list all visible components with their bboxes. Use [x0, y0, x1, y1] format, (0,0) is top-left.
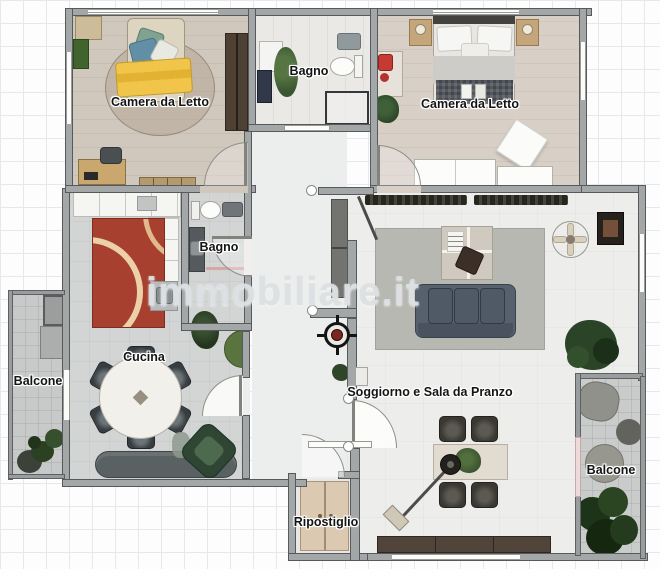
room-label-bathroom-top: Bagno [290, 64, 329, 78]
planter [28, 436, 41, 449]
armchair-cushion [192, 434, 226, 468]
red-lamp [378, 54, 393, 71]
fan-center [566, 235, 575, 244]
window [66, 52, 72, 124]
patio-table [616, 419, 642, 445]
watermark: immobiliare.it [146, 270, 420, 315]
door-leaf [308, 441, 372, 448]
chair [471, 416, 498, 442]
compass-icon [317, 315, 357, 355]
sideboard [377, 536, 551, 553]
vanity [257, 70, 272, 103]
wall [62, 479, 307, 487]
plant-leaf [593, 338, 619, 364]
shower-head [222, 202, 243, 217]
wall [318, 187, 374, 195]
rug-arc [92, 237, 143, 328]
keyboard [84, 172, 98, 180]
plant-large [565, 320, 617, 370]
plant-cluster [576, 487, 640, 557]
room-label-bathroom-mid: Bagno [200, 240, 239, 254]
room-label-bedroom-right: Camera da Letto [421, 97, 519, 111]
door-opening [242, 378, 250, 415]
plant-leaf [598, 487, 628, 517]
wall [579, 185, 646, 193]
wall [242, 415, 250, 479]
door-leaf [244, 142, 247, 186]
cooktop [137, 196, 157, 211]
door-hinge [343, 441, 354, 452]
red-vase [380, 73, 389, 82]
chair [471, 482, 498, 508]
door-leaf [239, 375, 242, 416]
yellow-blanket [115, 57, 193, 97]
dresser [414, 159, 496, 187]
room-label-kitchen: Cucina [123, 350, 165, 364]
toilet-tank [354, 55, 363, 78]
balcony-door [575, 437, 581, 497]
sofa-cushion [480, 288, 505, 324]
wall [350, 448, 360, 561]
plant-leaf [567, 346, 589, 368]
door-leaf [377, 145, 380, 186]
door-opening [200, 186, 248, 193]
arc-lamp-head [440, 454, 461, 475]
fan-blade [553, 236, 567, 243]
sofa-back [418, 323, 513, 337]
window [639, 234, 645, 292]
balcony-parapet [8, 290, 65, 295]
wall [579, 8, 587, 193]
compass-center [331, 329, 343, 341]
chair [439, 482, 466, 508]
door-hinge [306, 185, 317, 196]
toilet-tank [191, 201, 200, 220]
fan-blade [567, 242, 574, 256]
lamp-highlight [447, 461, 454, 468]
shower-head [337, 33, 361, 50]
sofa-cushion [428, 288, 453, 324]
wall [248, 8, 256, 132]
room-label-balcony-left: Balcone [14, 374, 63, 388]
room-label-storage: Ripostiglio [294, 515, 359, 529]
wall-unit [355, 367, 368, 386]
wall [242, 331, 250, 378]
chair [439, 416, 466, 442]
balcony-parapet [8, 290, 13, 480]
plant-leaf [610, 515, 638, 545]
door-opening [377, 186, 421, 193]
window-blind [365, 195, 467, 205]
door-leaf [212, 236, 252, 239]
wall [181, 323, 252, 331]
window [580, 42, 586, 100]
floor-plan: Camera da Letto Bagno Camera da Letto Ba… [0, 0, 660, 569]
shower-enclosure [325, 91, 369, 125]
lamp [415, 24, 426, 35]
nightstand [75, 16, 102, 40]
balcony-door [63, 370, 70, 420]
balcony-parapet [8, 474, 65, 479]
room-label-balcony-right: Balcone [587, 463, 636, 477]
balcony-parapet [575, 373, 643, 379]
room-label-living: Soggiorno e Sala da Pranzo [347, 385, 512, 399]
window [392, 554, 520, 560]
room-label-bedroom-left: Camera da Letto [111, 95, 209, 109]
fan-blade [573, 236, 587, 243]
sofa [415, 284, 516, 338]
rug-arc [143, 218, 165, 264]
window [88, 9, 218, 15]
balcony-parapet [640, 376, 646, 559]
kitchen-counter [73, 192, 181, 217]
fireplace-inner [603, 220, 618, 237]
wardrobe [225, 33, 248, 131]
bookshelf [73, 39, 89, 69]
wall [62, 188, 70, 487]
sofa-cushion [454, 288, 479, 324]
sliding-door [284, 125, 330, 131]
toilet [330, 57, 355, 76]
lamp [522, 24, 533, 35]
toilet [200, 201, 221, 219]
desk-chair [100, 147, 122, 164]
window [433, 9, 519, 15]
window-blind [474, 195, 568, 205]
headboard [433, 16, 515, 24]
